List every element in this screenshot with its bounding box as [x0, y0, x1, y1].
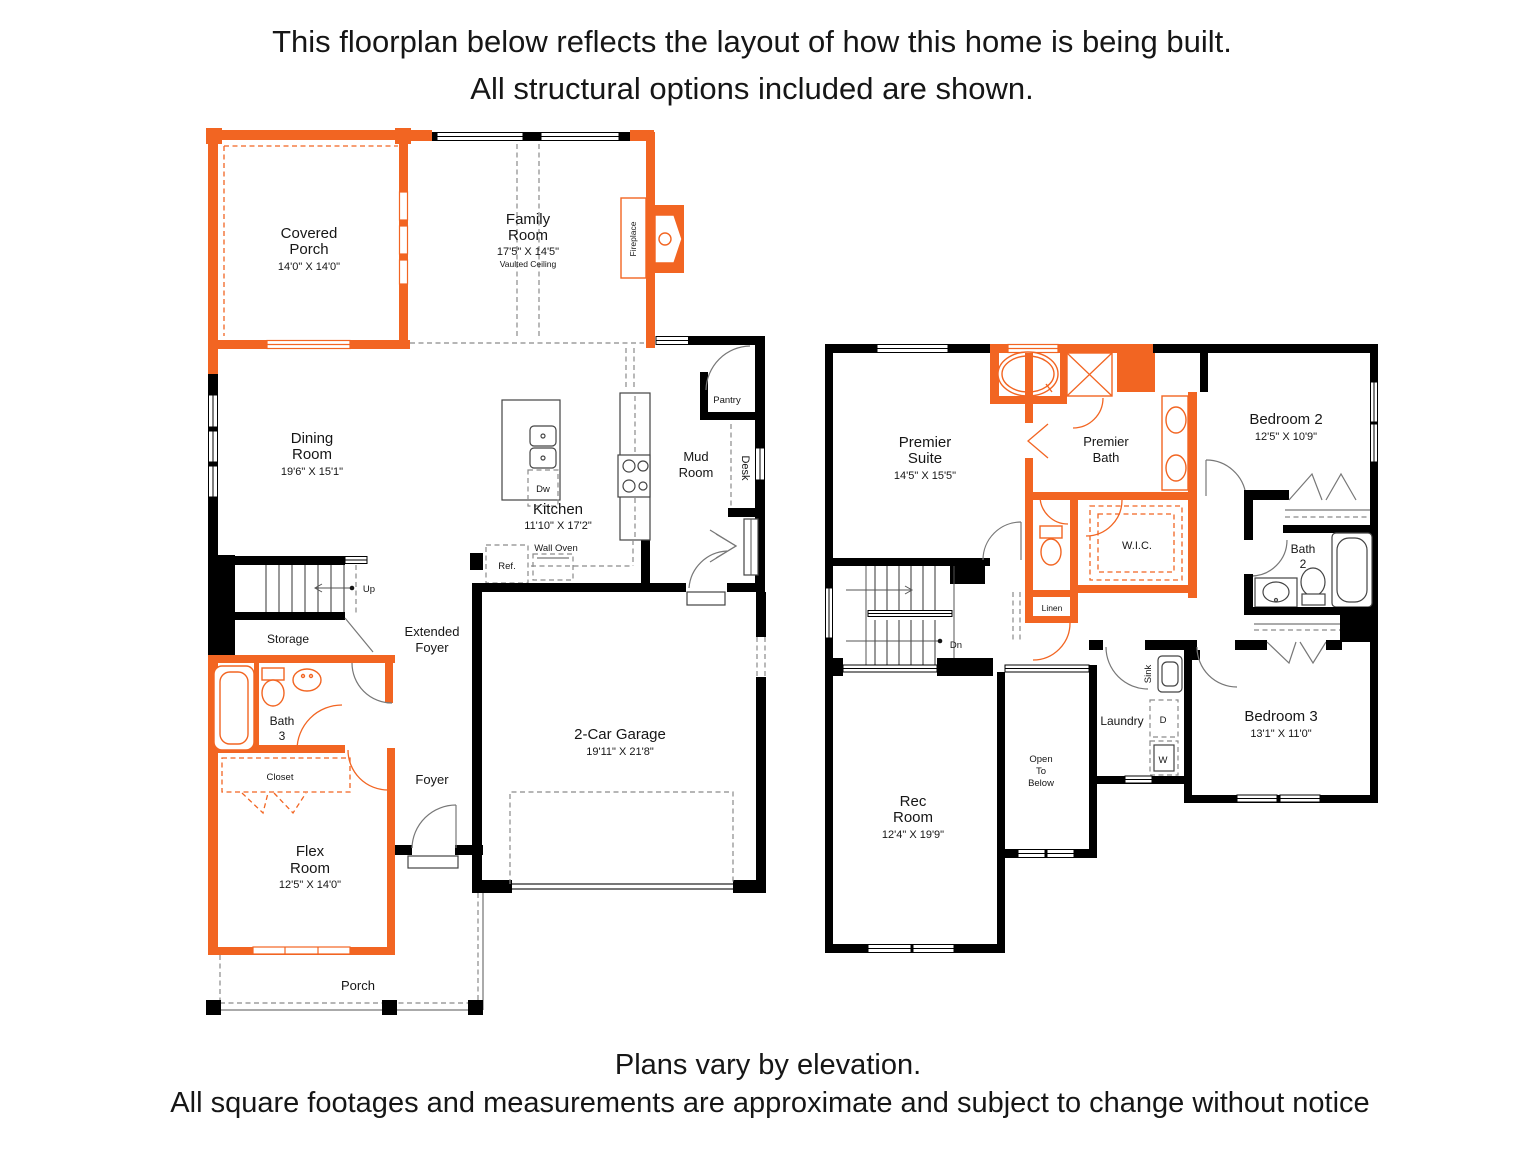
wic-label: W.I.C. — [1122, 540, 1152, 552]
rec-room-dims: 12'4" X 19'9" — [882, 829, 944, 841]
bedroom-3: Bedroom 3 13'1" X 11'0" — [1184, 640, 1378, 803]
dining-dims: 19'6" X 15'1" — [281, 466, 343, 478]
kitchen-dims: 11'10" X 17'2" — [524, 520, 592, 532]
linen-label: Linen — [1042, 603, 1063, 613]
stair-bottom-rail — [843, 665, 937, 672]
bedroom3-label: Bedroom 3 — [1244, 708, 1317, 725]
desk-label: Desk — [739, 455, 751, 481]
open-top-rail — [1005, 665, 1089, 672]
open-to-below: Open To Below — [1000, 665, 1097, 858]
bed3-window-1 — [1237, 795, 1277, 802]
covered-porch-label-1: Covered — [281, 225, 338, 242]
garage-dims: 19'11" X 21'8" — [586, 746, 654, 758]
garage-label: 2-Car Garage — [574, 726, 666, 743]
open-below-label-2: To — [1036, 766, 1046, 777]
extended-foyer-label-1: Extended — [405, 624, 460, 639]
stair-left-window — [826, 588, 833, 638]
flex-window — [253, 947, 350, 954]
open-below-label-3: Below — [1028, 778, 1054, 789]
flex-label-2: Room — [290, 860, 330, 877]
dining-window-3 — [209, 466, 218, 497]
floorplan-page: This floorplan below reflects the layout… — [0, 0, 1536, 1152]
rec-window-1 — [868, 945, 911, 953]
closet-label: Closet — [267, 772, 294, 783]
floorplan-diagram: This floorplan below reflects the layout… — [0, 0, 1536, 1152]
sink-label: Sink — [1143, 665, 1154, 684]
bedroom2-dims: 12'5" X 10'9" — [1255, 431, 1317, 443]
foyer-label: Foyer — [415, 772, 449, 787]
header: This floorplan below reflects the layout… — [272, 24, 1232, 106]
bath2-toilet — [1301, 568, 1325, 605]
wall-oven-label: Wall Oven — [534, 543, 577, 554]
second-floor-plan: Premier Suite 14'5" X 15'5" — [825, 344, 1378, 953]
family-room-label-1: Family — [506, 211, 551, 228]
header-line2: All structural options included are show… — [470, 71, 1033, 106]
laundry: Sink D W Laundry — [1089, 640, 1197, 795]
rec-room-label-2: Room — [893, 809, 933, 826]
covered-porch-dims: 14'0" X 14'0" — [278, 261, 340, 273]
footer-line2: All square footages and measurements are… — [170, 1087, 1369, 1119]
rec-window-2 — [913, 945, 954, 953]
laundry-sink — [1158, 656, 1182, 692]
bath3-sink — [293, 669, 321, 691]
stairs-up: Up Storage — [208, 555, 375, 657]
bath2-vanity — [1255, 578, 1297, 607]
cooktop — [618, 455, 650, 497]
bed2-window-2 — [1371, 424, 1378, 462]
footer: Plans vary by elevation. All square foot… — [170, 1049, 1369, 1119]
premier-bath-label-2: Bath — [1093, 450, 1120, 465]
dryer-label: D — [1160, 715, 1167, 726]
premier-suite-label-1: Premier — [899, 434, 952, 451]
open-window-2 — [1047, 850, 1074, 858]
mud-room-label-1: Mud — [683, 449, 708, 464]
premier-bath: Linen W.I.C. Premier Bath — [990, 344, 1197, 660]
family-room-label-2: Room — [508, 227, 548, 244]
tub-window — [1008, 345, 1058, 353]
porch-label: Porch — [341, 978, 375, 993]
desk-window — [756, 448, 765, 480]
bath2-label-1: Bath — [1291, 542, 1316, 556]
stair-rail-top — [345, 557, 367, 564]
open-window-1 — [1018, 850, 1045, 858]
family-window-1 — [437, 133, 523, 141]
family-room-note: Vaulted Ceiling — [500, 259, 557, 269]
washer-label: W — [1159, 755, 1168, 766]
fireplace-label: Fireplace — [628, 221, 638, 256]
stairs-down: Dn — [825, 566, 1020, 676]
bath3-label-1: Bath — [270, 714, 295, 728]
dining-top-window — [267, 341, 350, 349]
dn-label: Dn — [950, 640, 962, 651]
bath3-label-2: 3 — [279, 729, 286, 743]
bath3-toilet — [262, 668, 284, 706]
dining-window-1 — [209, 395, 218, 427]
up-label: Up — [363, 584, 375, 595]
window-below-fireplace — [656, 337, 692, 345]
premier-toilet — [1040, 526, 1062, 565]
suite-top-window — [877, 345, 948, 353]
bed2-window-1 — [1371, 382, 1378, 422]
premier-bath-label-1: Premier — [1083, 434, 1129, 449]
header-line1: This floorplan below reflects the layout… — [272, 24, 1232, 59]
garage: 2-Car Garage 19'11" X 21'8" — [470, 551, 766, 893]
bath2-label-2: 2 — [1300, 557, 1307, 571]
laundry-window — [1125, 776, 1152, 783]
foyer: Extended Foyer Foyer — [395, 624, 483, 868]
bed3-window-2 — [1280, 795, 1320, 802]
rec-room-label-1: Rec — [900, 793, 927, 810]
dining-label-2: Room — [292, 446, 332, 463]
premier-vanity — [1162, 396, 1188, 490]
storage-label: Storage — [267, 632, 309, 646]
extended-foyer-label-2: Foyer — [415, 640, 449, 655]
dining-window-2 — [209, 431, 218, 462]
dining-label-1: Dining — [291, 430, 334, 447]
bath-2: Bath 2 — [1244, 500, 1372, 642]
mud-room-label-2: Room — [679, 465, 714, 480]
rec-room: Rec Room 12'4" X 19'9" — [825, 672, 1005, 953]
porch-side-window — [400, 192, 408, 284]
footer-line1: Plans vary by elevation. — [615, 1049, 921, 1081]
laundry-label: Laundry — [1100, 714, 1143, 728]
flex-dims: 12'5" X 14'0" — [279, 879, 341, 891]
open-below-label-1: Open — [1029, 754, 1052, 765]
dishwasher-label: Dw — [536, 484, 550, 495]
premier-shower — [1067, 353, 1112, 428]
premier-suite-dims: 14'5" X 15'5" — [894, 470, 956, 482]
family-room-dims: 17'5" X 14'5" — [497, 246, 559, 258]
first-floor-plan: Fireplace — [206, 128, 766, 1015]
bath-3: Bath 3 — [208, 655, 395, 755]
flex-label-1: Flex — [296, 843, 325, 860]
kitchen-label: Kitchen — [533, 501, 583, 518]
family-window-2 — [541, 133, 619, 141]
stair-mid-rail — [868, 611, 952, 617]
kitchen: Dw Wall Oven Ref. — [486, 393, 650, 583]
refrigerator-label: Ref. — [498, 561, 515, 572]
premier-suite-label-2: Suite — [908, 450, 942, 467]
pantry-label: Pantry — [713, 395, 741, 406]
covered-porch-label-2: Porch — [289, 241, 328, 258]
bedroom2-label: Bedroom 2 — [1249, 411, 1322, 428]
flex-room: Closet Flex Room 12'5" X 14'0" — [208, 748, 395, 955]
bedroom3-dims: 13'1" X 11'0" — [1250, 728, 1311, 740]
